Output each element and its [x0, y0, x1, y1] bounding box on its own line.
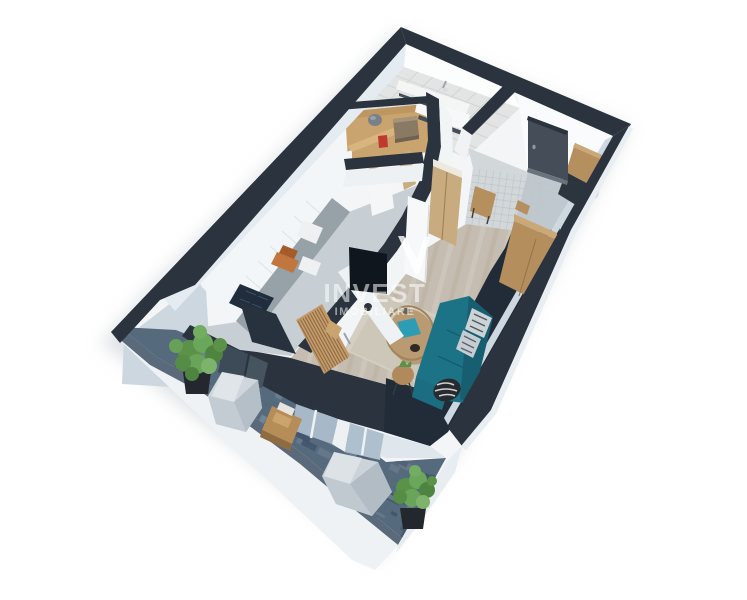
svg-text:IMOBILIARE: IMOBILIARE — [335, 306, 416, 318]
svg-text:INVEST: INVEST — [324, 278, 427, 308]
